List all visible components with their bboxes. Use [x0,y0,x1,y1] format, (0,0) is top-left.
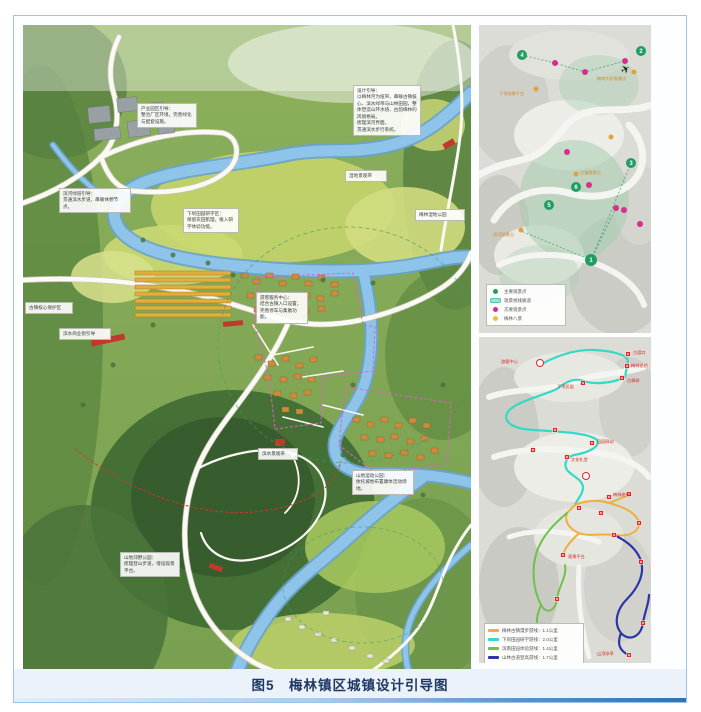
legend-item: 梅林八景 [490,314,562,323]
map-annotation: 滨水商业街引导 [59,328,111,340]
map-annotation: 古镇核心保护区 [25,302,73,314]
viewpoint-label: 滨河观景点 [493,233,514,238]
route-swatch [488,636,499,643]
bottom-accent-bar [14,698,686,702]
viewpoint-label: 古镇揽胜点 [580,171,601,176]
view-corridor-swatch [490,297,501,304]
viewpoint-analysis-map: 1 2 3 4 5 6 ✈ 下坝观景平台 梅林大桥观景点 古镇揽胜点 滨河观景点… [479,25,651,333]
map-annotation: 游客服务中心： 结合古镇入口设置，完善停车与集散功能。 [256,292,308,324]
tour-route-map: 古渡口 梅林老桥 古樟树 下坝民居 田园驿站 梅林老街 游客中心 文化礼堂 观景… [479,337,651,663]
legend-item: 次要观景点 [490,305,562,314]
legend-label: 次要观景点 [504,307,527,313]
figure-frame: 设计引导： 以梅林河为纽带，串联古镇核心、滨水绿带与山林田园，整体塑造山环水绕、… [13,15,687,703]
legend-item: 滨南田园体验游线：1.4公里 [488,644,580,653]
route-swatch [488,645,499,652]
caption-strip: 图5 梅林镇区城镇设计引导图 [14,669,686,698]
map-annotation: 山地运动公园： 依托坡地布置康体活动场地。 [352,470,414,495]
legend-item: 下坝田园研学游线：2.0公里 [488,635,580,644]
route-swatch [488,627,499,634]
main-viewpoint-swatch [490,288,501,295]
map-annotation: 下坝田园研学区： 保留农田肌理，植入研学体验功能。 [183,208,239,233]
legend-item: 山林古道登高游线：1.7公里 [488,653,580,662]
legend-item: 梅林古镇漫步游线：1.1公里 [488,626,580,635]
legend-item: 主要观景点 [490,287,562,296]
legend-label: 梅林古镇漫步游线：1.1公里 [502,628,558,634]
viewpoint-label: 下坝观景平台 [499,92,524,97]
viewpoint-label: 梅林大桥观景点 [597,77,626,82]
poi-label: 梅林老街 [613,493,630,498]
map-annotation: 滨河绿道引导： 贯通滨水步道，串联休憩节点。 [59,188,131,213]
poi-label: 梅林老桥 [631,364,648,369]
secondary-viewpoint-swatch [490,306,501,313]
map-annotation: 滨水景观带 [258,448,298,460]
map-annotation: 设计引导： 以梅林河为纽带，串联古镇核心、滨水绿带与山林田园，整体塑造山环水绕、… [353,85,421,136]
viewpoint-legend: 主要观景点 观景视线廊道 次要观景点 梅林八景 [486,284,566,326]
poi-label: 古樟树 [627,379,640,384]
map-annotation: 梅林湿地公园 [415,209,465,221]
poi-label: 文化礼堂 [571,458,588,463]
master-plan-map: 设计引导： 以梅林河为纽带，串联古镇核心、滨水绿带与山林田园，整体塑造山环水绕、… [23,25,471,669]
poi-label: 田园驿站 [597,440,614,445]
map-annotation: 湿地景观带 [345,170,387,182]
scenic-spot-swatch [490,315,501,322]
legend-label: 观景视线廊道 [504,298,531,304]
poi-label: 观景平台 [568,555,585,560]
legend-label: 主要观景点 [504,289,527,295]
legend-label: 山林古道登高游线：1.7公里 [502,655,558,661]
poi-label: 游客中心 [501,360,518,365]
poi-label: 下坝民居 [557,385,574,390]
map-annotation: 产业园区引导： 整治厂区环境，完善绿化与配套设施。 [137,103,197,128]
route-legend: 梅林古镇漫步游线：1.1公里 下坝田园研学游线：2.0公里 滨南田园体验游线：1… [484,623,584,663]
poi-label: 古渡口 [633,351,646,356]
legend-label: 滨南田园体验游线：1.4公里 [502,646,558,652]
route-swatch [488,654,499,661]
document-page: 设计引导： 以梅林河为纽带，串联古镇核心、滨水绿带与山林田园，整体塑造山环水绕、… [0,0,701,712]
map-annotation: 山地郊野公园： 梳理登山步道，增设观景平台。 [120,552,180,577]
greenhouse-rows [135,271,231,317]
legend-item: 观景视线廊道 [490,296,562,305]
legend-label: 下坝田园研学游线：2.0公里 [502,637,558,643]
legend-label: 梅林八景 [504,316,522,322]
poi-label: 山顶凉亭 [597,652,614,657]
figure-caption: 图5 梅林镇区城镇设计引导图 [251,674,448,694]
